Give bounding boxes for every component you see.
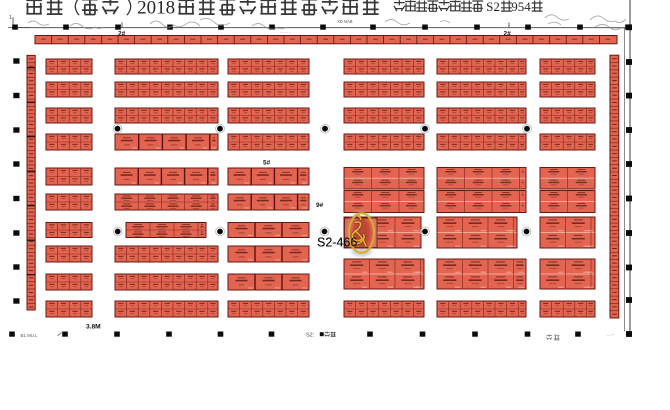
svg-text:9#: 9# <box>316 202 324 209</box>
svg-text:2018: 2018 <box>137 0 175 19</box>
svg-text:1: 1 <box>9 15 12 21</box>
svg-text:2#: 2# <box>118 30 126 37</box>
svg-text:S2: S2 <box>486 0 500 14</box>
svg-text:5#: 5# <box>263 160 271 167</box>
svg-text:3.8M: 3.8M <box>86 323 101 330</box>
svg-text:2#: 2# <box>504 30 512 37</box>
svg-text:S2-466: S2-466 <box>317 236 357 250</box>
svg-text:S2:: S2: <box>306 333 315 339</box>
svg-text:B1 MU.L: B1 MU.L <box>21 333 39 338</box>
svg-text:....... ..: ....... .. <box>280 29 291 34</box>
svg-text:954: 954 <box>511 0 531 14</box>
svg-text:XD NAB: XD NAB <box>337 19 353 24</box>
svg-text:....--: ....-- <box>607 332 615 337</box>
